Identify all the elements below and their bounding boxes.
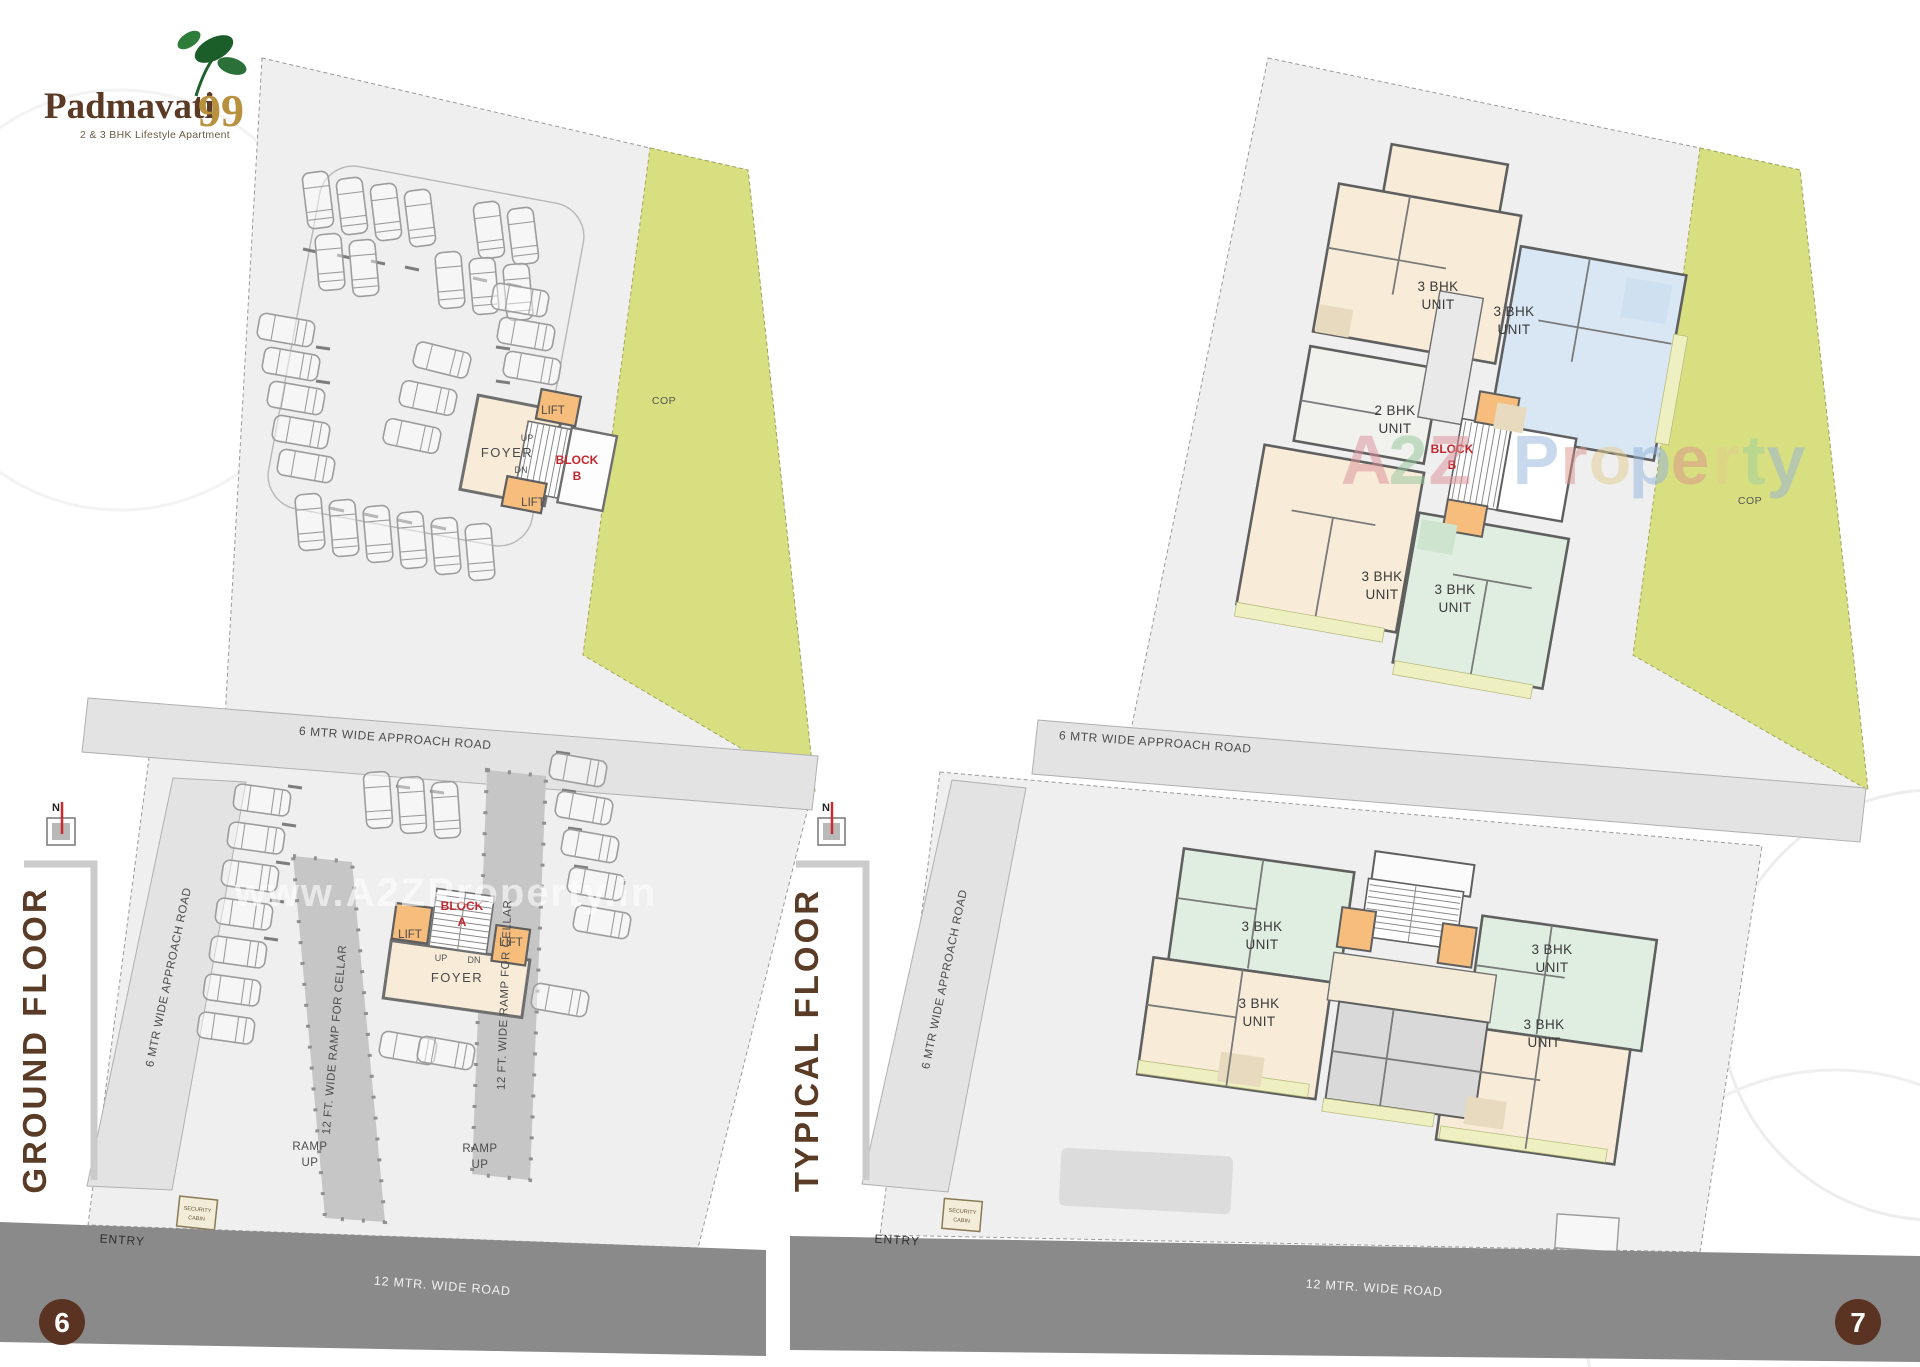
security-cabin: SECURITY CABIN — [177, 1196, 218, 1230]
unit-label: UNIT — [1245, 937, 1278, 952]
unit-label: 3 BHK — [1434, 582, 1475, 597]
bath-cell — [1463, 1096, 1507, 1129]
svg-text:r: r — [1560, 421, 1587, 499]
lift-label: LIFT — [398, 929, 422, 941]
unit-label: 3 BHK — [1361, 569, 1402, 584]
car-icon — [431, 781, 461, 839]
foyer-label: FOYER — [431, 970, 483, 985]
car-icon — [315, 233, 346, 291]
car-icon — [431, 517, 462, 575]
page-number: 6 — [54, 1307, 70, 1338]
unit-label: 3 BHK — [1241, 919, 1282, 934]
svg-text:2: 2 — [1389, 421, 1428, 499]
utility-box — [1555, 1214, 1619, 1252]
svg-text:Z: Z — [1429, 421, 1472, 499]
page-title: TYPICAL FLOOR — [788, 888, 825, 1192]
north-label: N — [52, 802, 60, 814]
unit-label: 3 BHK — [1417, 279, 1458, 294]
car-icon — [363, 505, 394, 563]
unit-label: 2 BHK — [1374, 403, 1415, 418]
svg-text:o: o — [1589, 421, 1632, 499]
amenity-slab — [1059, 1148, 1234, 1215]
ramp-up-label: RAMP — [462, 1143, 497, 1155]
brochure-spread: LIFT LIFT FOYER UP DN BLOCK B BLOCK A LI… — [0, 0, 1920, 1367]
unit-label: UNIT — [1365, 587, 1398, 602]
room-cell — [1620, 277, 1672, 324]
unit-label: 3 BHK — [1493, 304, 1534, 319]
lift-box — [1337, 907, 1376, 951]
ramp-up-label: RAMP — [292, 1141, 327, 1153]
svg-text:e: e — [1671, 421, 1710, 499]
page-number: 7 — [1850, 1307, 1866, 1338]
dn-label: DN — [468, 955, 481, 965]
up-label: UP — [521, 433, 534, 443]
block-a-letter: A — [458, 915, 467, 929]
svg-text:r: r — [1712, 421, 1739, 499]
car-icon — [397, 511, 428, 569]
page-number-badge: 7 — [1835, 1299, 1881, 1345]
lift-label: LIFT — [541, 405, 565, 417]
svg-text:p: p — [1629, 421, 1672, 499]
ramp-up-label: UP — [302, 1157, 319, 1169]
svg-text:A: A — [1341, 421, 1392, 499]
car-icon — [465, 523, 496, 581]
unit-label: UNIT — [1535, 960, 1568, 975]
car-icon — [329, 499, 360, 557]
unit-label: 3 BHK — [1238, 996, 1279, 1011]
block-b-label: BLOCK — [556, 453, 599, 467]
watermark-text: A 2 Z P r o p e r t y — [1341, 421, 1806, 499]
dn-label: DN — [515, 465, 528, 475]
unit-label: UNIT — [1527, 1035, 1560, 1050]
north-label: N — [822, 802, 830, 814]
bath-cell — [1315, 304, 1353, 337]
car-icon — [349, 239, 380, 297]
brand-name: Padmavati — [44, 86, 215, 127]
car-icon — [295, 493, 326, 551]
ramp-up-label: UP — [472, 1159, 489, 1171]
svg-text:y: y — [1767, 421, 1806, 499]
car-icon — [435, 251, 466, 309]
unit-label: UNIT — [1242, 1014, 1275, 1029]
unit-label: 3 BHK — [1523, 1017, 1564, 1032]
unit-label: 3 BHK — [1531, 942, 1572, 957]
car-icon — [397, 776, 427, 834]
car-icon — [363, 771, 393, 829]
svg-text:t: t — [1742, 421, 1765, 499]
cop-label: COP — [1738, 495, 1762, 507]
bath-cell — [1217, 1052, 1265, 1088]
unit-label: UNIT — [1438, 600, 1471, 615]
up-label: UP — [435, 953, 448, 963]
foyer-label: FOYER — [481, 445, 533, 460]
unit-label: UNIT — [1497, 322, 1530, 337]
brand-tagline: 2 & 3 BHK Lifestyle Apartment — [80, 129, 230, 141]
watermark-text: www.A2ZProperty.in — [234, 871, 658, 915]
wide-road-band — [790, 1236, 1920, 1362]
page-number-badge: 6 — [39, 1299, 85, 1345]
lift-label: LIFT — [521, 497, 545, 509]
cop-label: COP — [652, 395, 676, 407]
lift-box — [1438, 923, 1477, 967]
page-title: GROUND FLOOR — [16, 886, 53, 1193]
entry-label: ENTRY — [874, 1232, 920, 1249]
security-cabin: SECURITY CABIN — [942, 1198, 982, 1231]
room-cell — [1417, 519, 1458, 555]
block-b-letter: B — [573, 469, 582, 483]
unit-label: UNIT — [1421, 297, 1454, 312]
svg-text:P: P — [1513, 421, 1560, 499]
